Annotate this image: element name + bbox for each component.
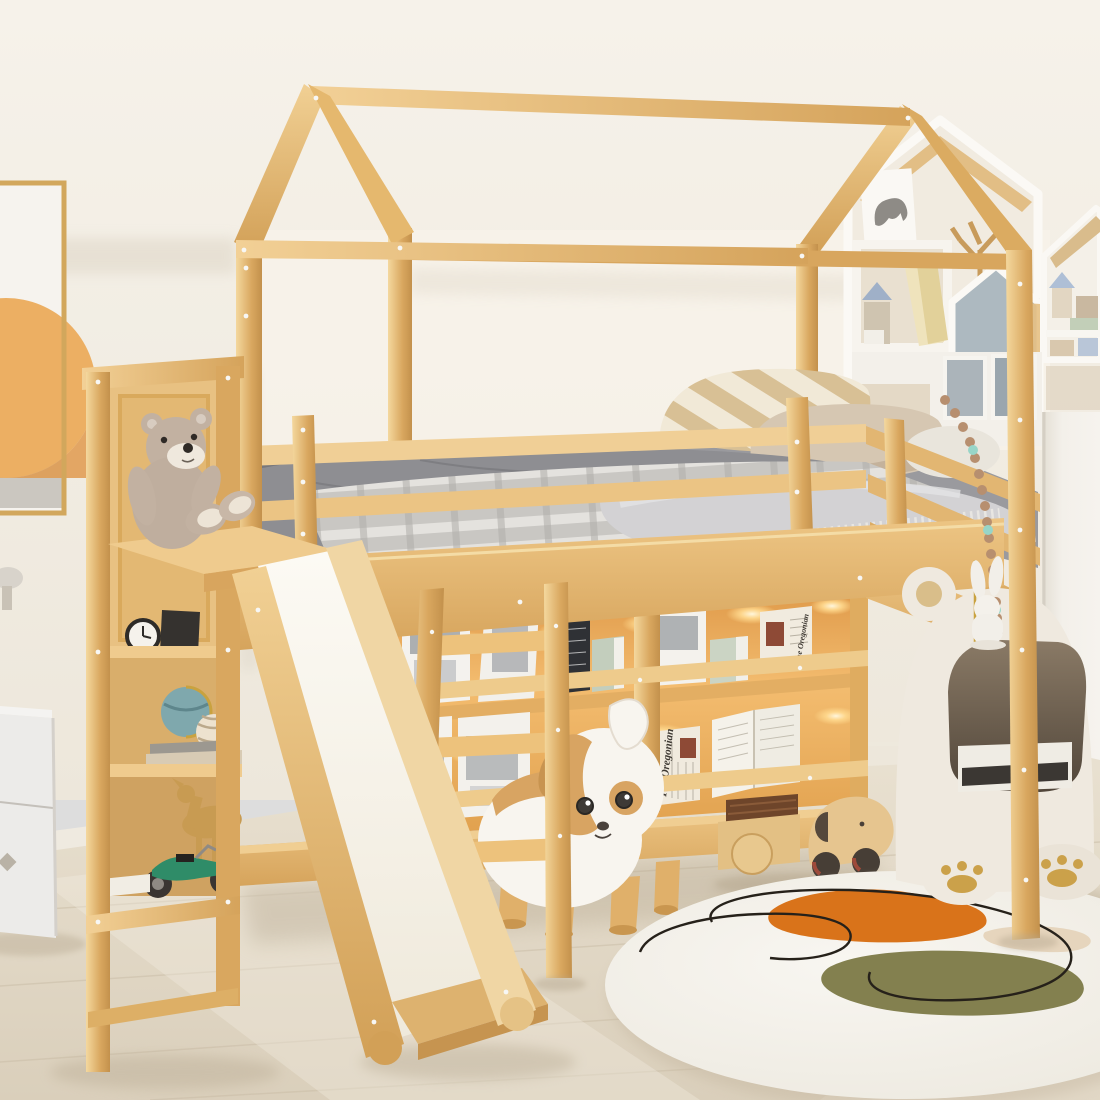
drawer-cabinet [0, 706, 56, 938]
tower-left-post [86, 372, 110, 1072]
cart-wheel [732, 834, 772, 874]
ladder-right-rail [544, 582, 572, 978]
table-ear [916, 581, 942, 607]
room-illustration: The Oregonian The Oregonian [0, 0, 1100, 1100]
kids-room-scene: The Oregonian The Oregonian [0, 0, 1100, 1100]
front-right-post [388, 228, 412, 448]
